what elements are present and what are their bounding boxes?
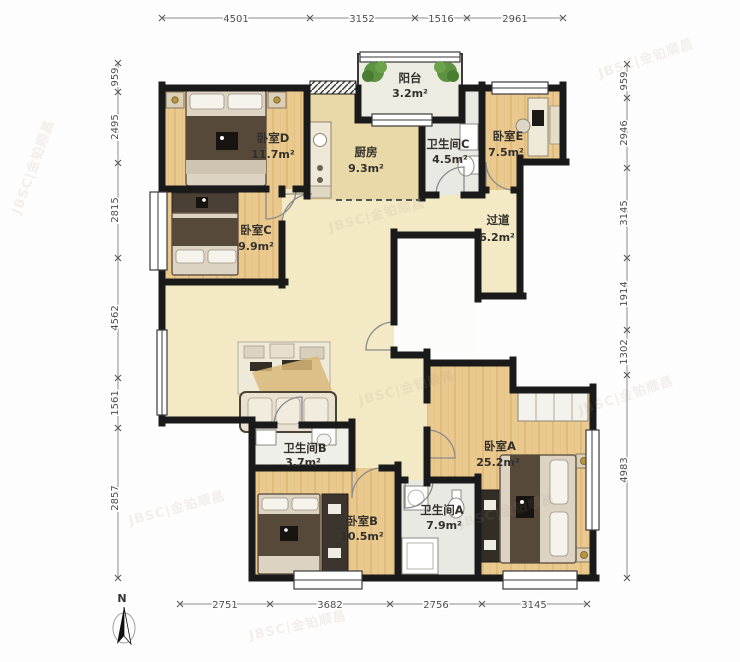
compass-label: N (117, 592, 126, 605)
window-bedroom-a-bottom (503, 571, 577, 589)
window-bedroom-e (492, 82, 548, 94)
room-label: 卧室E (493, 129, 524, 143)
dim-label: 3145 (521, 600, 546, 611)
room-label: 卧室C (240, 223, 271, 237)
kitchen-counter (309, 122, 331, 198)
dim-label: 2756 (423, 600, 448, 611)
room-area-label: 11.7m² (251, 148, 295, 161)
watermark: JBSC|金铂顺昌 (595, 36, 695, 82)
compass: N (113, 592, 135, 644)
dim-label: 2751 (212, 600, 237, 611)
room-label: 卫生间A (420, 503, 463, 517)
dimension-ruler-top: 4501 3152 1516 2961 (159, 14, 566, 25)
floorplan-page: 阳台 3.2m² 卧室D 11.7m² 厨房 9.3m² 卫生间C 4.5m² … (0, 0, 740, 662)
watermark: JBSC|金铂顺昌 (8, 117, 57, 217)
dim-label: 1914 (619, 281, 630, 306)
window-bedroom-a-right (586, 430, 599, 530)
room-balcony (358, 52, 462, 120)
room-label: 过道 (487, 213, 510, 227)
dim-label: 3152 (349, 14, 374, 25)
dimension-ruler-bottom: 2751 3682 2756 3145 (177, 600, 590, 611)
room-area-label: 10.5m² (340, 530, 384, 543)
room-area-label: 7.9m² (426, 519, 462, 532)
dim-label: 4983 (619, 457, 630, 482)
dim-label: 3145 (619, 200, 630, 225)
room-label: 卧室A (484, 439, 516, 453)
dim-label: 2495 (110, 114, 121, 139)
dim-label: 959 (110, 67, 121, 86)
dim-label: 4562 (110, 305, 121, 330)
room-label: 卫生间C (427, 137, 470, 151)
room-label: 卧室D (257, 131, 290, 145)
room-label: 卧室B (346, 514, 378, 528)
dim-label: 2961 (502, 14, 527, 25)
dimension-ruler-left: 959 2495 2815 4562 1561 2857 (110, 60, 121, 581)
room-label: 阳台 (399, 71, 422, 85)
dim-label: 1302 (619, 339, 630, 364)
bed-furniture (172, 193, 238, 275)
room-area-label: 4.5m² (432, 153, 468, 166)
dimension-ruler-right: 959 2946 3145 1914 1302 4983 (619, 61, 630, 581)
structural-hatch (310, 81, 356, 94)
room-label: 卫生间B (283, 441, 326, 455)
room-area-label: 9.3m² (348, 162, 384, 175)
room-area-label: 6.2m² (479, 231, 515, 244)
room-label: 厨房 (355, 145, 378, 159)
dim-label: 2857 (110, 485, 121, 510)
window-bedroom-c-bay (150, 192, 167, 270)
void-area (394, 235, 478, 355)
window-balcony-door (372, 114, 432, 126)
window-bedroom-b (294, 571, 362, 589)
room-area-label: 3.2m² (392, 87, 428, 100)
window-living-left (157, 330, 167, 415)
dim-label: 4501 (223, 14, 248, 25)
room-area-label: 7.5m² (488, 146, 524, 159)
room-area-label: 9.9m² (238, 240, 274, 253)
dim-label: 2946 (619, 120, 630, 145)
watermark: JBSC|金铂顺昌 (247, 608, 349, 645)
compass-needle-icon (117, 607, 124, 644)
floorplan-svg: 阳台 3.2m² 卧室D 11.7m² 厨房 9.3m² 卫生间C 4.5m² … (0, 0, 740, 662)
dim-label: 1561 (110, 390, 121, 415)
room-area-label: 25.2m² (476, 456, 520, 469)
room-area-label: 3.7m² (285, 456, 321, 469)
bed-furniture (258, 494, 348, 574)
dim-label: 2815 (110, 197, 121, 222)
watermark: JBSC|金铂顺昌 (126, 488, 227, 529)
dim-label: 1516 (428, 14, 453, 25)
